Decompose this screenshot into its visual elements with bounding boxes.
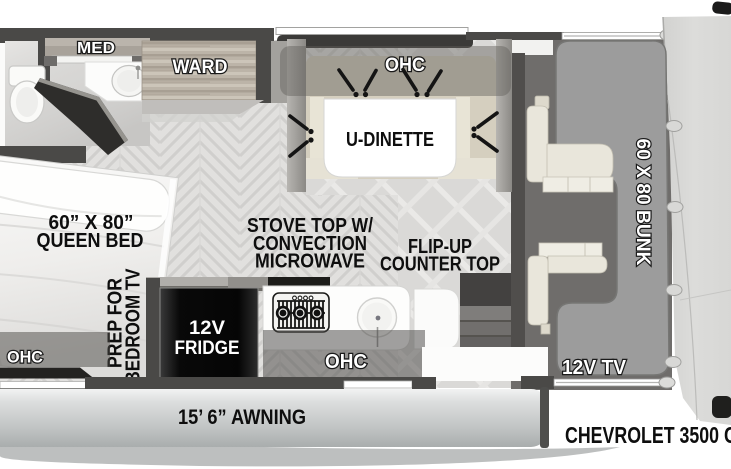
svg-text:BEDROOM TV: BEDROOM TV: [123, 268, 145, 384]
svg-text:MICROWAVE: MICROWAVE: [255, 251, 365, 273]
svg-text:15’ 6” AWNING: 15’ 6” AWNING: [178, 406, 306, 429]
svg-text:60 X 80 BUNK: 60 X 80 BUNK: [632, 139, 653, 266]
svg-text:FRIDGE: FRIDGE: [175, 338, 240, 359]
svg-text:12V: 12V: [189, 318, 225, 339]
svg-text:WARD: WARD: [173, 57, 228, 78]
svg-text:OHC: OHC: [325, 351, 367, 373]
svg-text:QUEEN BED: QUEEN BED: [37, 230, 144, 252]
svg-text:CHEVROLET 3500 CHASSIS: CHEVROLET 3500 CHASSIS: [565, 422, 731, 448]
svg-text:U-DINETTE: U-DINETTE: [346, 129, 434, 151]
svg-text:OHC: OHC: [7, 349, 43, 367]
svg-text:12V TV: 12V TV: [562, 357, 627, 379]
svg-text:COUNTER TOP: COUNTER TOP: [380, 254, 500, 276]
svg-text:MED: MED: [77, 40, 115, 57]
